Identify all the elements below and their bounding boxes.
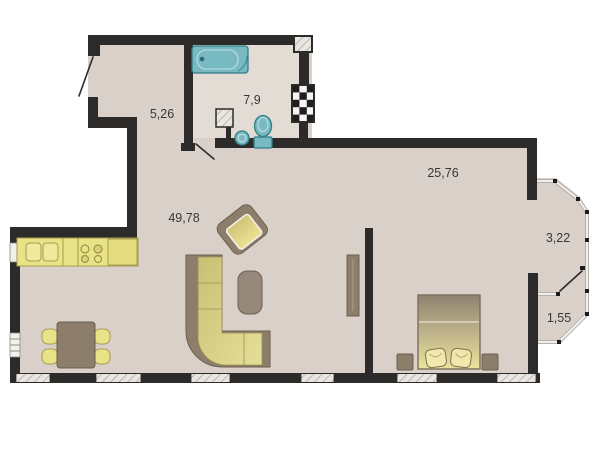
coffee-table [238,271,262,314]
window-6 [497,374,536,383]
sink-basin-left [26,243,41,261]
fridge-cabinet [108,239,137,265]
balcony-door-stop [580,266,585,270]
wall-shaft-lower [299,122,308,138]
label-bedroom: 25,76 [427,166,458,180]
nightstand-right [482,354,498,370]
dining-table [57,322,95,368]
double-bed [418,295,480,369]
wall-top [88,35,296,45]
kitchen-counter [17,238,138,266]
chair [42,349,58,364]
toilet [254,116,272,149]
wall-right-lower [528,273,538,383]
sink-basin-right [43,243,58,261]
window-2 [96,374,141,383]
wall-kitchen-top [10,227,132,238]
left-ladder-window [10,333,20,357]
pillow [450,348,472,368]
duct-shaft-checker [292,85,314,122]
chair [42,329,58,344]
wall-left-upper [88,97,98,119]
label-balcony-lower: 1,55 [547,311,571,325]
window-4 [301,374,334,383]
wall-bottom [10,373,540,383]
wall-entry-corner [88,35,100,56]
nightstand-left [397,354,413,370]
label-bathroom: 7,9 [243,93,260,107]
faucet [200,57,205,62]
window-1 [16,374,50,383]
window-5 [397,374,437,383]
label-living: 49,78 [168,211,199,225]
column-hatched [294,36,312,52]
bathtub [192,46,248,73]
window-3 [191,374,230,383]
floor-plan: 5,26 7,9 49,78 25,76 3,22 1,55 [0,0,600,450]
wall-bedroom-partition [365,228,373,373]
chair [94,349,110,364]
floor-plan-canvas: 5,26 7,9 49,78 25,76 3,22 1,55 [0,0,600,450]
chair [94,329,110,344]
wall-right-upper [527,138,537,200]
label-hallway: 5,26 [150,107,174,121]
wardrobe [347,255,359,316]
wash-basin [235,131,249,145]
label-balcony-upper: 3,22 [546,231,570,245]
wall-inner-left [127,128,137,238]
wall-divider-cap [181,143,195,151]
pillow [425,348,447,369]
wall-left-b [10,262,20,333]
wall-hall-step [88,117,137,128]
